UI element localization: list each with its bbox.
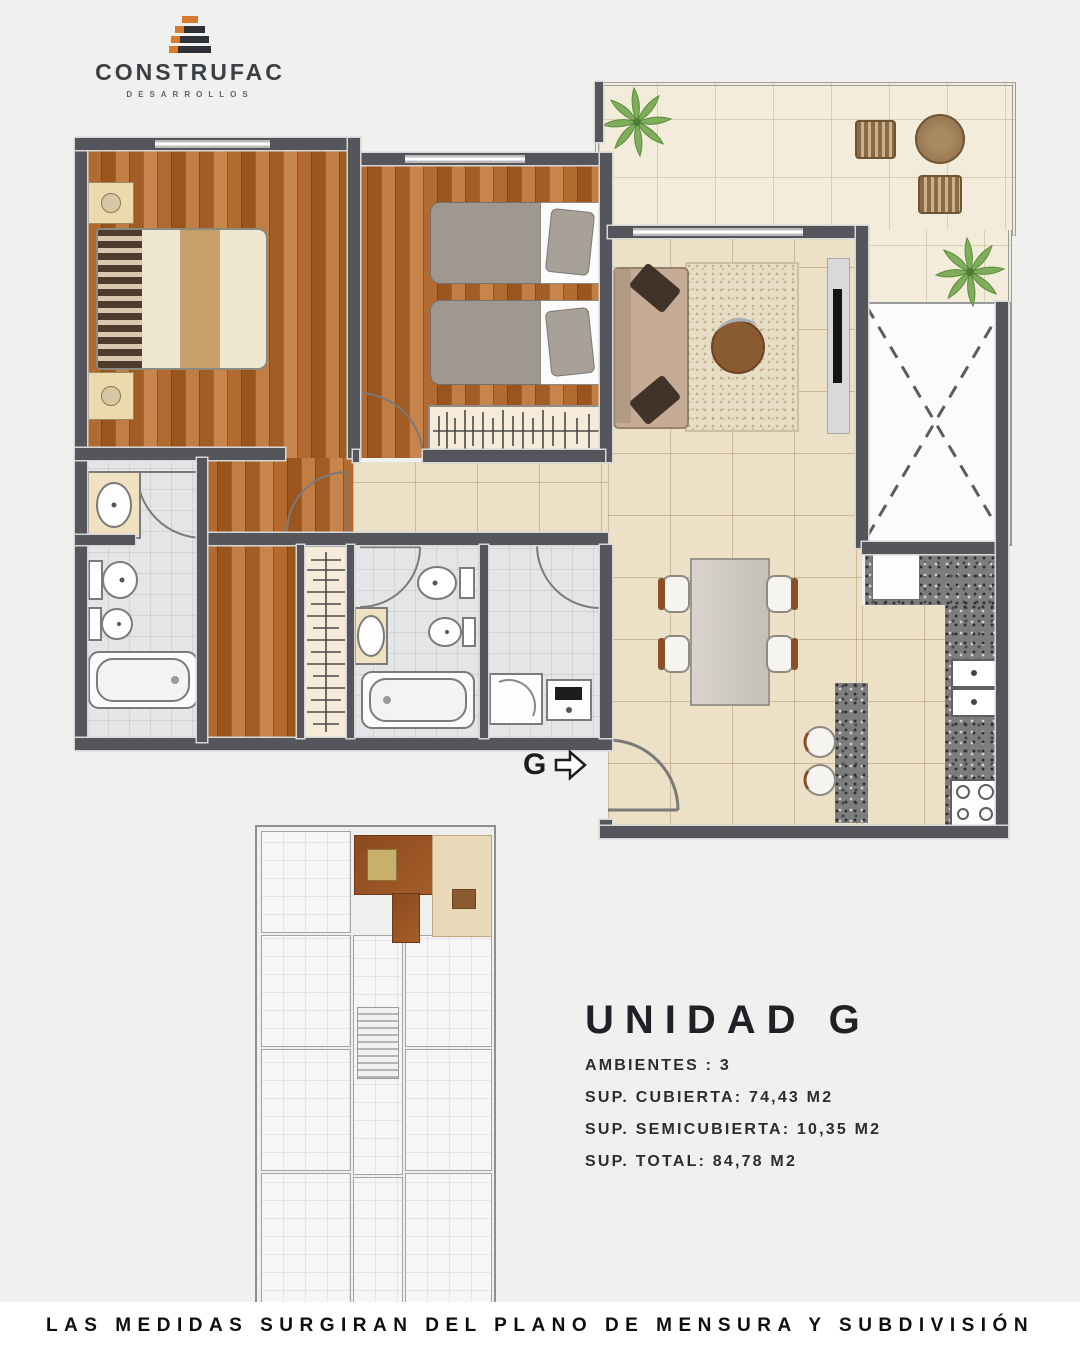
- coffee-table: [712, 318, 764, 373]
- key-plan-unit-g-table: [452, 889, 476, 909]
- key-plan-unit-g-highlight: [392, 893, 420, 943]
- key-plan-unit: [405, 1173, 492, 1309]
- wall-segment: [600, 826, 1008, 838]
- footer-disclaimer-band: LAS MEDIDAS SURGIRAN DEL PLANO DE MENSUR…: [0, 1302, 1080, 1350]
- bathroom-2-fixtures: [355, 567, 475, 728]
- logo-building-icon: [168, 16, 212, 53]
- wall-segment: [75, 138, 87, 746]
- bidet-back: [463, 618, 475, 646]
- toilet-tank: [89, 561, 102, 599]
- door-arc: [537, 545, 600, 608]
- unit-spec-sup-cubierta: SUP. CUBIERTA: 74,43 M2: [585, 1089, 1045, 1107]
- unit-spec-sup-total: SUP. TOTAL: 84,78 M2: [585, 1153, 1045, 1171]
- dining-chairs: [658, 576, 798, 672]
- unit-spec-sup-semicubierta: SUP. SEMICUBIERTA: 10,35 M2: [585, 1121, 1045, 1139]
- key-plan-unit: [261, 1049, 351, 1171]
- door-arc: [360, 547, 420, 607]
- door-arc: [137, 472, 203, 538]
- wall-segment: [996, 302, 1008, 838]
- hanger-rail-icon: [307, 552, 345, 732]
- key-plan-unit: [405, 935, 492, 1047]
- unit-info: UNIDAD G AMBIENTES : 3 SUP. CUBIERTA: 74…: [585, 998, 1045, 1171]
- bidet-back: [89, 608, 101, 640]
- palm-plant-icon: [603, 88, 671, 156]
- entry-arrow-icon: [553, 749, 589, 781]
- key-plan-stairs: [357, 1007, 399, 1079]
- bathroom-1-fixtures: [88, 472, 197, 708]
- laundry-fixtures: [490, 674, 591, 724]
- door-arc: [358, 393, 423, 458]
- key-plan-unit: [261, 831, 351, 933]
- kitchen-fixtures: [951, 660, 999, 826]
- window: [155, 140, 270, 148]
- key-plan-unit: [405, 1049, 492, 1171]
- wall-segment: [595, 82, 603, 142]
- wall-segment: [480, 545, 488, 738]
- wall-segment: [297, 545, 304, 738]
- wall-segment: [856, 226, 868, 548]
- toilet-tank: [460, 568, 474, 598]
- wall-segment: [197, 458, 207, 742]
- key-plan-unit: [261, 1173, 351, 1309]
- unit-title: UNIDAD G: [585, 998, 1045, 1043]
- key-plan-unit-g-bed: [367, 849, 397, 881]
- door-arc: [287, 472, 347, 532]
- shaft-cross-icon: [867, 307, 1003, 537]
- wall-segment: [347, 545, 354, 738]
- entry-marker: G: [523, 748, 589, 782]
- wall-segment: [75, 535, 135, 545]
- floor-plan-unit-g: G: [75, 80, 1010, 840]
- key-plan-unit: [353, 1177, 403, 1309]
- wall-segment: [600, 153, 612, 462]
- wall-segment: [348, 138, 360, 458]
- window: [405, 155, 525, 163]
- wall-segment: [75, 448, 285, 460]
- footer-disclaimer: LAS MEDIDAS SURGIRAN DEL PLANO DE MENSUR…: [46, 1315, 1034, 1337]
- palm-plant-icon: [936, 238, 1004, 306]
- wall-segment: [600, 545, 612, 738]
- entry-marker-letter: G: [523, 748, 546, 782]
- key-plan-building: [255, 825, 496, 1316]
- wall-segment: [862, 542, 1008, 554]
- wall-segment: [203, 533, 608, 545]
- entry-door-arc: [608, 740, 678, 810]
- key-plan-unit-g-highlight: [432, 835, 492, 937]
- wall-segment: [353, 450, 359, 462]
- wall-segment: [423, 450, 605, 462]
- unit-spec-ambientes: AMBIENTES : 3: [585, 1057, 1045, 1075]
- sliding-door: [633, 228, 803, 236]
- sink-basin: [358, 616, 384, 656]
- hanger-rail-icon: [433, 410, 601, 452]
- key-plan-unit: [261, 935, 351, 1047]
- bar-stools: [805, 727, 835, 795]
